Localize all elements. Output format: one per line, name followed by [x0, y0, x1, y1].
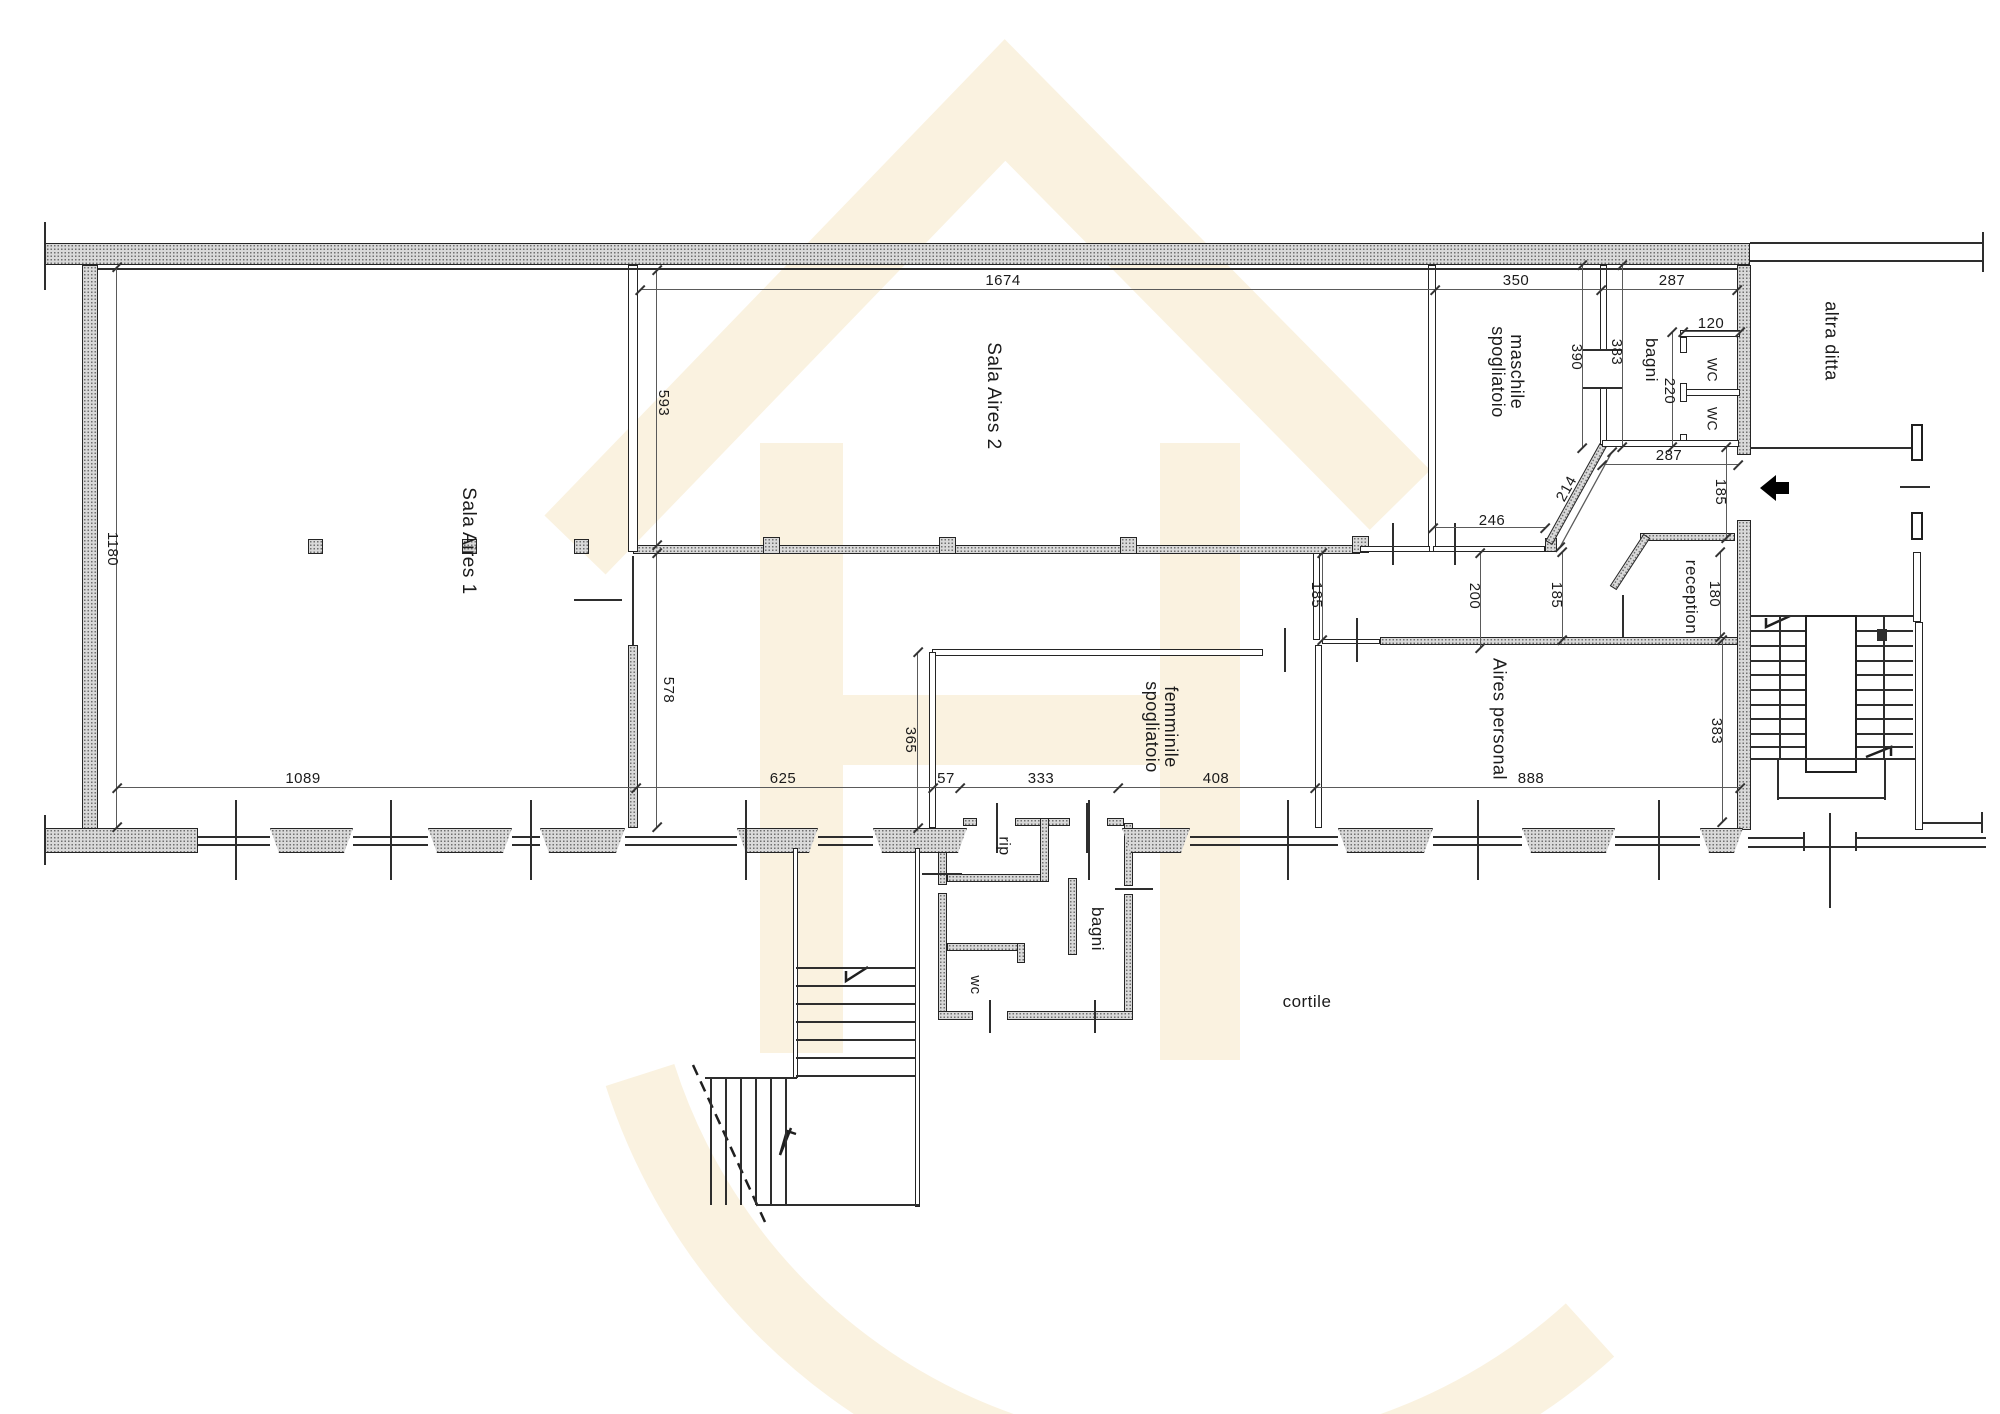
stair-tread-right-1	[1857, 615, 1913, 617]
window-pier-7	[1338, 828, 1433, 853]
courtyard-tread-6	[796, 1057, 916, 1059]
stair-tread-left-7	[1750, 704, 1805, 706]
annex-wall-rip-bottom	[947, 874, 1043, 882]
tick-bottomwall-left-end	[44, 815, 46, 865]
courtyard-tread-2	[796, 985, 916, 987]
stair-tread-left-4	[1750, 660, 1805, 662]
window-glazing-6-a	[1190, 836, 1338, 838]
window-pier-4	[737, 828, 818, 853]
wall-maschile-bagni-b	[1600, 388, 1607, 445]
window-pier-6	[1122, 828, 1190, 853]
courtyard-tread-lower-5	[770, 1077, 772, 1205]
dimension-label-dim-287-top: 287	[1659, 273, 1686, 289]
stair-tread-left-3	[1750, 645, 1805, 647]
line-stairhall-door-jamb-b	[1855, 832, 1857, 851]
wall-maschile-left	[1428, 265, 1436, 552]
line-stairhall-bottom-b	[1856, 837, 1986, 839]
wall-mid-thin-b	[1433, 546, 1545, 552]
door-tick-4	[1094, 1000, 1096, 1033]
window-pier-3	[540, 828, 625, 853]
courtyard-stair-wall-right	[915, 848, 920, 1207]
annex-wall-bottom-a	[938, 1011, 973, 1020]
courtyard-stair-bottom	[757, 1204, 919, 1206]
window-pier-5	[873, 828, 967, 853]
door-tick-6	[1454, 523, 1456, 565]
line-property-top-2	[1750, 260, 1984, 262]
annex-wall-right-b	[1124, 894, 1133, 1020]
stair-tread-left-10	[1750, 746, 1805, 748]
courtyard-tread-lower-3	[740, 1077, 742, 1205]
stair-tread-right-2	[1857, 630, 1913, 632]
window-mullion-7	[1477, 800, 1479, 880]
line-bottom-right	[1923, 822, 1983, 824]
annex-wall-rip-right	[1040, 818, 1049, 882]
window-mullion-5	[1088, 800, 1090, 880]
line-stairhall-bottom-a	[1748, 837, 1804, 839]
stairhall-wall-right	[1915, 622, 1923, 830]
annex-wall-wc-stub	[1017, 943, 1025, 963]
wall-divider-lower	[628, 645, 638, 828]
courtyard-stair-wall-left	[793, 848, 798, 1078]
courtyard-tread-4	[796, 1021, 916, 1023]
room-label-reception: reception	[1682, 560, 1700, 634]
wall-exterior-bottom-left	[45, 828, 198, 853]
window-mullion-8	[1658, 800, 1660, 880]
door-tick-3	[989, 1000, 991, 1033]
stair-tread-right-3	[1857, 645, 1913, 647]
tick-topwall-left-end	[44, 222, 46, 290]
window-glazing-5-a	[818, 836, 873, 838]
window-mullion-4	[745, 800, 747, 880]
dimension-label-dim-120: 120	[1698, 316, 1725, 332]
door-tick-5	[1392, 523, 1394, 565]
stairhall-pier-upper	[1911, 424, 1923, 461]
room-label-rip: rip	[995, 836, 1012, 855]
stair-landing-line	[1750, 758, 1915, 760]
wall-divider-upper	[628, 265, 638, 552]
stair-tread-right-4	[1857, 660, 1913, 662]
stair-tread-left-9	[1750, 733, 1805, 735]
dimension-label-dim-625: 625	[770, 771, 797, 787]
annex-wall-left-a	[938, 848, 947, 885]
dimension-label-dim-185-corridor-left: 185	[1308, 582, 1324, 609]
dimension-label-dim-185-corridor-right: 185	[1548, 582, 1564, 609]
line-stairhall-door-jamb-a	[1803, 832, 1805, 851]
courtyard-tread-lower-4	[755, 1077, 757, 1205]
door-tick-11	[1115, 888, 1153, 890]
stair-tread-right-6	[1857, 689, 1913, 691]
room-label-wc-top-2: WC	[1705, 407, 1720, 431]
dimension-label-dim-350: 350	[1503, 273, 1530, 289]
window-glazing-5-b	[818, 844, 873, 846]
door-tick-9	[1900, 486, 1930, 488]
room-label-sala-aires-2: Sala Aires 2	[983, 342, 1003, 449]
wall-exterior-left	[82, 265, 98, 853]
room-label-bagni-annex: bagni	[1088, 907, 1106, 951]
stair-tread-left-1	[1750, 615, 1805, 617]
room-label-wc-annex: wc	[967, 975, 983, 994]
stair-landing-left	[1777, 760, 1779, 800]
stair-tread-right-8	[1857, 718, 1913, 720]
window-mullion-1	[235, 800, 237, 880]
stair-tread-left-6	[1750, 689, 1805, 691]
door-tick-14	[574, 599, 622, 601]
dimension-label-dim-180: 180	[1706, 581, 1722, 608]
dimension-label-dim-593: 593	[655, 390, 671, 417]
annex-wall-top-a	[963, 818, 977, 826]
window-glazing-4-a	[625, 836, 737, 838]
stair-tread-left-8	[1750, 718, 1805, 720]
window-pier-2	[428, 828, 512, 853]
dimension-label-dim-220: 220	[1661, 378, 1677, 405]
pillar-midwall-2	[939, 537, 956, 554]
stair-tread-left-5	[1750, 674, 1805, 676]
stair-tread-right-5	[1857, 674, 1913, 676]
annex-wall-bagni-left	[1068, 878, 1077, 955]
window-glazing-4-b	[625, 844, 737, 846]
dim-line-578	[656, 553, 657, 827]
reception-counter	[1640, 533, 1735, 541]
dimension-label-dim-365: 365	[902, 727, 918, 754]
room-label-spogliatoio-femminile: spogliatoio femminile	[1142, 681, 1180, 773]
wall-wc-divider	[1680, 389, 1740, 396]
tick-property-top-2	[1982, 250, 1984, 272]
annex-wall-wc-top	[947, 943, 1020, 951]
window-mullion-6	[1287, 800, 1289, 880]
wall-mid-horizontal	[633, 545, 1360, 554]
wall-mid-thin-a	[1360, 546, 1430, 552]
door-tick-2	[1086, 803, 1088, 853]
annex-wall-top-c	[1107, 818, 1124, 826]
column-sala1-3	[574, 539, 589, 554]
dim-line-287-bottom	[1602, 464, 1738, 465]
dimension-label-dim-185-entrance: 185	[1712, 479, 1728, 506]
stair-landing-bottom	[1777, 797, 1886, 799]
room-label-spogliatoio-maschile: spogliatoio maschile	[1488, 326, 1526, 418]
dimension-label-dim-1180: 1180	[104, 532, 120, 566]
stair-handrail-left	[1779, 615, 1781, 758]
stair-void	[1805, 615, 1857, 773]
stair-tread-left-2	[1750, 630, 1805, 632]
stair-tread-right-9	[1857, 733, 1913, 735]
dimension-label-dim-578: 578	[660, 677, 676, 704]
stair-tread-right-7	[1857, 704, 1913, 706]
stairhall-pier-lower	[1911, 512, 1923, 540]
room-label-altra-ditta: altra ditta	[1822, 301, 1841, 381]
column-sala1-1	[308, 539, 323, 554]
door-tick-10	[922, 873, 962, 875]
line-property-top-1	[1750, 242, 1984, 244]
door-tick-7	[1284, 628, 1286, 672]
window-mullion-3	[530, 800, 532, 880]
dimension-label-dim-246: 246	[1479, 513, 1506, 529]
room-label-aires-personal: Aires personal	[1490, 658, 1509, 780]
line-topwall-inner-face	[98, 268, 1738, 270]
wall-aires-personal-opening	[1322, 639, 1380, 644]
dimension-label-dim-383-bagni: 383	[1608, 339, 1624, 366]
wall-maschile-bagni-a	[1600, 265, 1607, 350]
courtyard-tread-lower-1	[710, 1077, 712, 1205]
dimension-label-dim-200: 200	[1466, 583, 1482, 610]
line-altra-ditta-bottom	[1750, 447, 1911, 449]
dimension-label-dim-408: 408	[1203, 771, 1230, 787]
stair-tread-right-10	[1857, 746, 1913, 748]
courtyard-tread-1	[796, 967, 916, 969]
annex-wall-left-b	[938, 893, 947, 1020]
door-tick-15	[632, 556, 634, 645]
courtyard-tread-lower-2	[725, 1077, 727, 1205]
window-glazing-1-a	[198, 836, 270, 838]
window-pier-1	[270, 828, 353, 853]
wall-femminile-top	[932, 649, 1263, 656]
wall-aires-personal-left	[1315, 645, 1322, 828]
wall-femminile-left	[929, 652, 936, 828]
dimension-label-dim-333: 333	[1028, 771, 1055, 787]
dim-line-bottom-chain	[117, 787, 1740, 788]
stair-handrail-right	[1883, 615, 1885, 758]
dimension-label-dim-383-stair: 383	[1708, 718, 1724, 745]
dimension-label-dim-888: 888	[1518, 771, 1545, 787]
floor-plan-canvas: Sala Aires 1Sala Aires 2spogliatoio masc…	[0, 0, 2000, 1414]
tick-bottom-right	[1981, 812, 1983, 833]
dimension-label-dim-1674: 1674	[985, 273, 1020, 289]
room-label-bagni-top: bagni	[1642, 338, 1660, 382]
room-label-wc-top-1: WC	[1705, 358, 1720, 382]
wall-wc-left-a	[1680, 337, 1687, 353]
room-label-cortile: cortile	[1283, 993, 1332, 1011]
door-tick-8	[1356, 618, 1358, 662]
dimension-label-dim-287-bottom: 287	[1656, 448, 1683, 464]
line-reception-front	[1622, 595, 1624, 637]
tick-stairhall-door	[1829, 813, 1831, 908]
line-stairhall-bottom-c	[1748, 846, 1986, 848]
courtyard-tread-5	[796, 1039, 916, 1041]
wall-exterior-top	[45, 243, 1750, 265]
window-mullion-2	[390, 800, 392, 880]
stairhall-wall-upper	[1913, 552, 1921, 622]
stair-landing-right	[1884, 760, 1886, 800]
door-tick-13	[1583, 387, 1623, 389]
window-pier-8	[1522, 828, 1615, 853]
wall-exterior-right-upper	[1737, 265, 1751, 455]
dimension-label-dim-390: 390	[1568, 344, 1584, 371]
dimension-label-dim-57: 57	[937, 771, 955, 787]
watermark-house-logo	[0, 0, 2000, 1414]
room-label-sala-aires-1: Sala Aires 1	[458, 487, 478, 594]
courtyard-landing-line	[705, 1077, 797, 1079]
dimension-label-dim-1089: 1089	[285, 771, 320, 787]
window-glazing-6-b	[1190, 844, 1338, 846]
annex-wall-bottom-b	[1007, 1011, 1133, 1020]
pillar-midwall-3	[1120, 537, 1137, 554]
window-glazing-3-b	[512, 844, 540, 846]
window-glazing-3-a	[512, 836, 540, 838]
pillar-midwall-1	[763, 537, 780, 554]
dim-line-top-chain	[640, 289, 1737, 290]
wall-wc-left-b	[1680, 383, 1687, 402]
courtyard-tread-lower-6	[785, 1077, 787, 1205]
window-glazing-1-b	[198, 844, 270, 846]
courtyard-tread-7	[796, 1075, 916, 1077]
courtyard-tread-3	[796, 1003, 916, 1005]
